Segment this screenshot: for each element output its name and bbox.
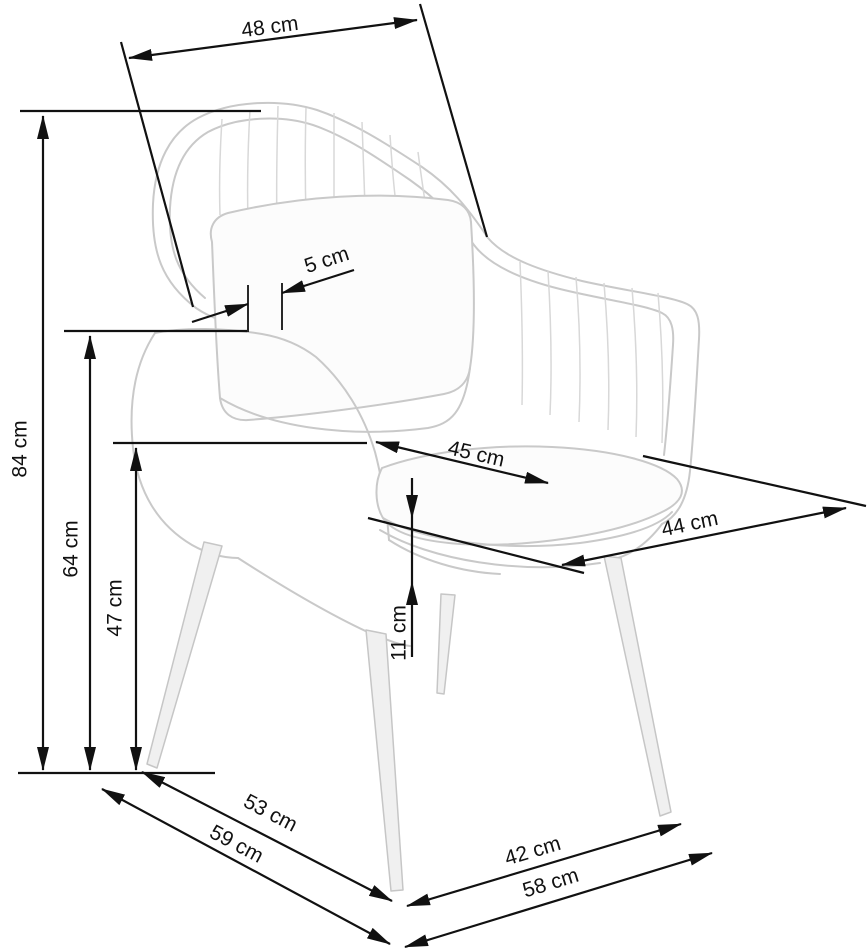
stitch-line xyxy=(658,293,663,443)
stitch-line xyxy=(604,283,609,430)
stitch-line xyxy=(576,277,580,422)
dimension-58cm: 58 cm xyxy=(405,853,712,947)
stitch-line xyxy=(520,262,522,405)
right-arm-stitching xyxy=(520,262,663,443)
chair-sketch xyxy=(132,103,700,891)
dimension-line xyxy=(142,772,392,901)
dimension-47cm: 47 cm xyxy=(104,443,367,770)
chair-shell-front-edge xyxy=(238,558,410,646)
dimension-label-84cm: 84 cm xyxy=(9,420,32,477)
dimension-label-11cm: 11 cm xyxy=(388,605,411,661)
stitch-line xyxy=(632,288,637,437)
stitch-line xyxy=(362,122,365,207)
chair-seat-cushion xyxy=(376,446,681,544)
stitch-line xyxy=(248,110,250,222)
extension-line xyxy=(121,42,193,307)
dimension-53cm: 53 cm xyxy=(142,772,392,901)
stitch-line xyxy=(220,119,222,215)
dimension-label-47cm: 47 cm xyxy=(104,579,127,636)
chair-leg-left xyxy=(147,542,222,768)
chair-leg-front xyxy=(366,630,403,891)
dimension-diagram: 48 cm 84 cm 64 cm 47 cm 5 cm 45 cm 44 c xyxy=(0,0,867,950)
dimension-label-64cm: 64 cm xyxy=(60,520,83,577)
dimension-84cm: 84 cm xyxy=(9,111,261,770)
chair-leg-rear xyxy=(437,594,455,694)
stitch-line xyxy=(548,271,551,415)
dimension-line xyxy=(405,853,712,947)
diagram-svg: 48 cm 84 cm 64 cm 47 cm 5 cm 45 cm 44 c xyxy=(0,0,867,950)
chair-leg-right xyxy=(604,556,671,816)
dimension-label-42cm: 42 cm xyxy=(502,832,563,870)
dimension-label-53cm: 53 cm xyxy=(240,790,301,837)
